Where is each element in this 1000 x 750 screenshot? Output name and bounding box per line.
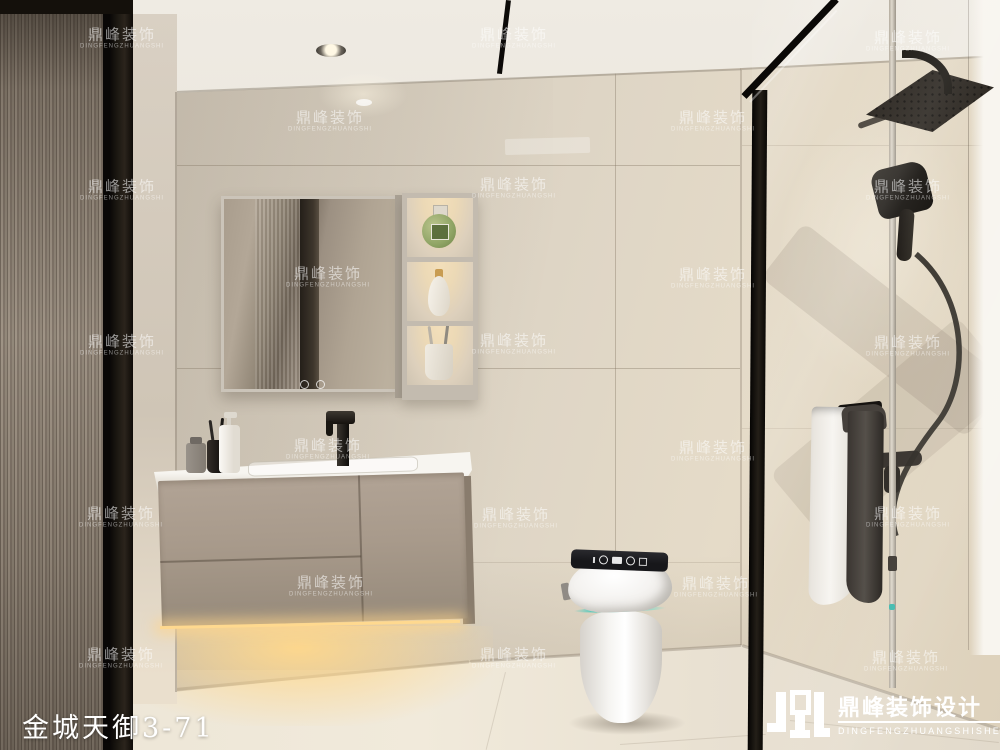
toilet-panel-bar-icon bbox=[592, 556, 594, 562]
mirror-defog-icon bbox=[300, 380, 309, 389]
toilet-panel-ring-icon bbox=[598, 555, 607, 564]
pipe-teal-detail bbox=[889, 604, 895, 610]
cabinet-door-seam bbox=[358, 475, 364, 621]
fluted-glass-door bbox=[0, 0, 105, 750]
shelf-cubby-top bbox=[407, 198, 473, 257]
shelf-cubby-bottom bbox=[407, 326, 473, 385]
recessed-downlight bbox=[316, 44, 346, 57]
mirror-reflection-doorframe bbox=[300, 199, 319, 389]
mirror-reflection-fluted bbox=[255, 199, 300, 389]
wall-highlight-oval bbox=[356, 99, 372, 106]
vanity-cabinet bbox=[158, 472, 468, 626]
storage-shelf bbox=[402, 193, 478, 400]
toothbrush-cup bbox=[425, 344, 453, 380]
toilet-panel-square-icon bbox=[638, 557, 646, 565]
white-vase bbox=[428, 276, 450, 316]
mirror-cabinet bbox=[221, 196, 400, 392]
logo-mark-box bbox=[790, 690, 811, 715]
logo-name-en: DINGFENGZHUANGSHISHEJI bbox=[838, 726, 1000, 736]
gray-bottle bbox=[186, 443, 206, 473]
pipe-bracket bbox=[888, 556, 897, 571]
door-top-frame bbox=[0, 0, 133, 14]
black-faucet bbox=[337, 420, 349, 466]
white-soap-bottle bbox=[219, 425, 240, 473]
toilet-control-panel bbox=[571, 549, 669, 572]
soap-pump-head bbox=[224, 412, 237, 418]
project-title: 金城天御3-71 bbox=[22, 706, 215, 745]
tile-seam-horizontal bbox=[175, 165, 740, 166]
faucet-spout bbox=[326, 421, 333, 436]
logo-name-cn: 鼎峰装饰设计 bbox=[838, 690, 1000, 722]
downlight-glow bbox=[318, 70, 408, 118]
wall-corner-seam bbox=[740, 62, 742, 652]
gray-bottle-cap bbox=[190, 437, 202, 444]
logo-mark-foot bbox=[814, 728, 830, 737]
cabinet-drawer-seam bbox=[160, 555, 361, 563]
perfume-label bbox=[431, 224, 449, 240]
wall-light-reflection bbox=[505, 137, 590, 155]
logo-mark-foot bbox=[790, 730, 810, 738]
toilet-panel-ring-icon bbox=[625, 556, 634, 565]
toothbrush bbox=[444, 326, 450, 345]
logo-divider bbox=[838, 721, 1000, 723]
mirror-light-icon bbox=[316, 380, 325, 389]
brand-logo: 鼎峰装饰设计 DINGFENGZHUANGSHISHEJI bbox=[762, 686, 1000, 746]
smart-toilet bbox=[560, 545, 695, 740]
mirror-surface bbox=[224, 199, 397, 389]
logo-mark-foot bbox=[767, 723, 786, 732]
toilet-panel-display bbox=[611, 557, 621, 564]
dark-towel bbox=[846, 411, 884, 603]
shelf-cubby-middle bbox=[407, 262, 473, 321]
bathroom-render-scene: 鼎峰装饰DINGFENGZHUANGSHI鼎峰装饰DINGFENGZHUANGS… bbox=[0, 0, 1000, 750]
toilet-body bbox=[580, 611, 662, 723]
door-frame bbox=[103, 0, 133, 750]
